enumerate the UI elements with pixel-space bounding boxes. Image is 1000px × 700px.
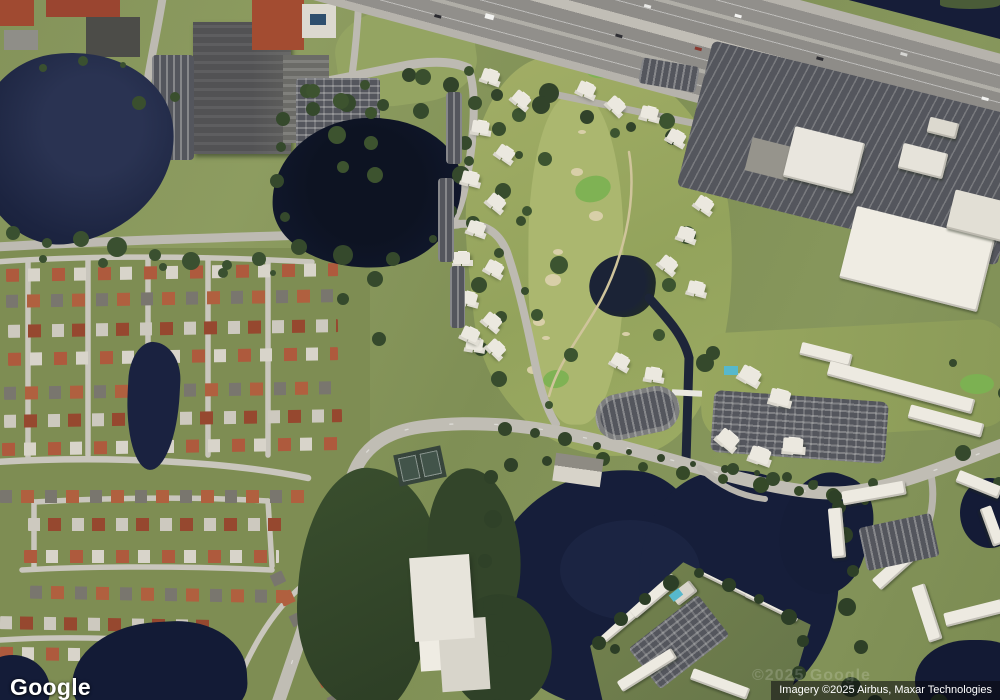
attribution-text: Imagery ©2025 Airbus, Maxar Technologies	[771, 681, 1000, 700]
apartment-building	[782, 437, 803, 453]
tree-cluster-golf	[512, 108, 526, 122]
google-logo[interactable]: Google	[10, 674, 91, 700]
shore-vegetation	[940, 0, 1000, 9]
tree-cluster	[6, 226, 20, 240]
apartment-building	[690, 668, 750, 700]
tree-line-highway	[402, 68, 416, 82]
condo-parking	[450, 266, 465, 328]
house-row	[24, 550, 279, 563]
commercial-building-red-roof	[46, 0, 120, 17]
tree-cluster-lakeshore	[484, 470, 498, 484]
clubhouse-building	[409, 554, 475, 642]
house-row	[0, 490, 305, 503]
tree-cluster-parking	[306, 84, 320, 98]
satellite-map-canvas[interactable]: ©2025 Google Google Imagery ©2025 Airbus…	[0, 0, 1000, 700]
tree-cluster	[276, 112, 290, 126]
tennis-court	[398, 455, 421, 482]
commercial-building-red-roof	[252, 0, 304, 50]
tree-cluster-apartments	[706, 346, 720, 360]
commercial-building-white	[302, 4, 336, 38]
commercial-building-red-roof	[0, 0, 34, 26]
rooftop-pool	[310, 14, 326, 25]
tennis-court	[419, 450, 442, 477]
condo-parking	[438, 178, 454, 262]
house-row	[28, 518, 290, 531]
tree-fringe-island	[592, 636, 606, 650]
apartment-parking	[710, 390, 889, 464]
sand-bunkers	[571, 168, 583, 176]
tree-median-row	[558, 432, 572, 446]
condo-building	[453, 252, 470, 264]
tree-cluster-northwest	[132, 96, 146, 110]
tree-cluster-condos	[468, 96, 482, 110]
swimming-pool	[724, 366, 738, 375]
condo-parking	[446, 92, 462, 164]
commercial-building-dark-roof	[86, 17, 140, 57]
commercial-building-gray	[4, 30, 38, 50]
putting-green	[960, 374, 994, 394]
